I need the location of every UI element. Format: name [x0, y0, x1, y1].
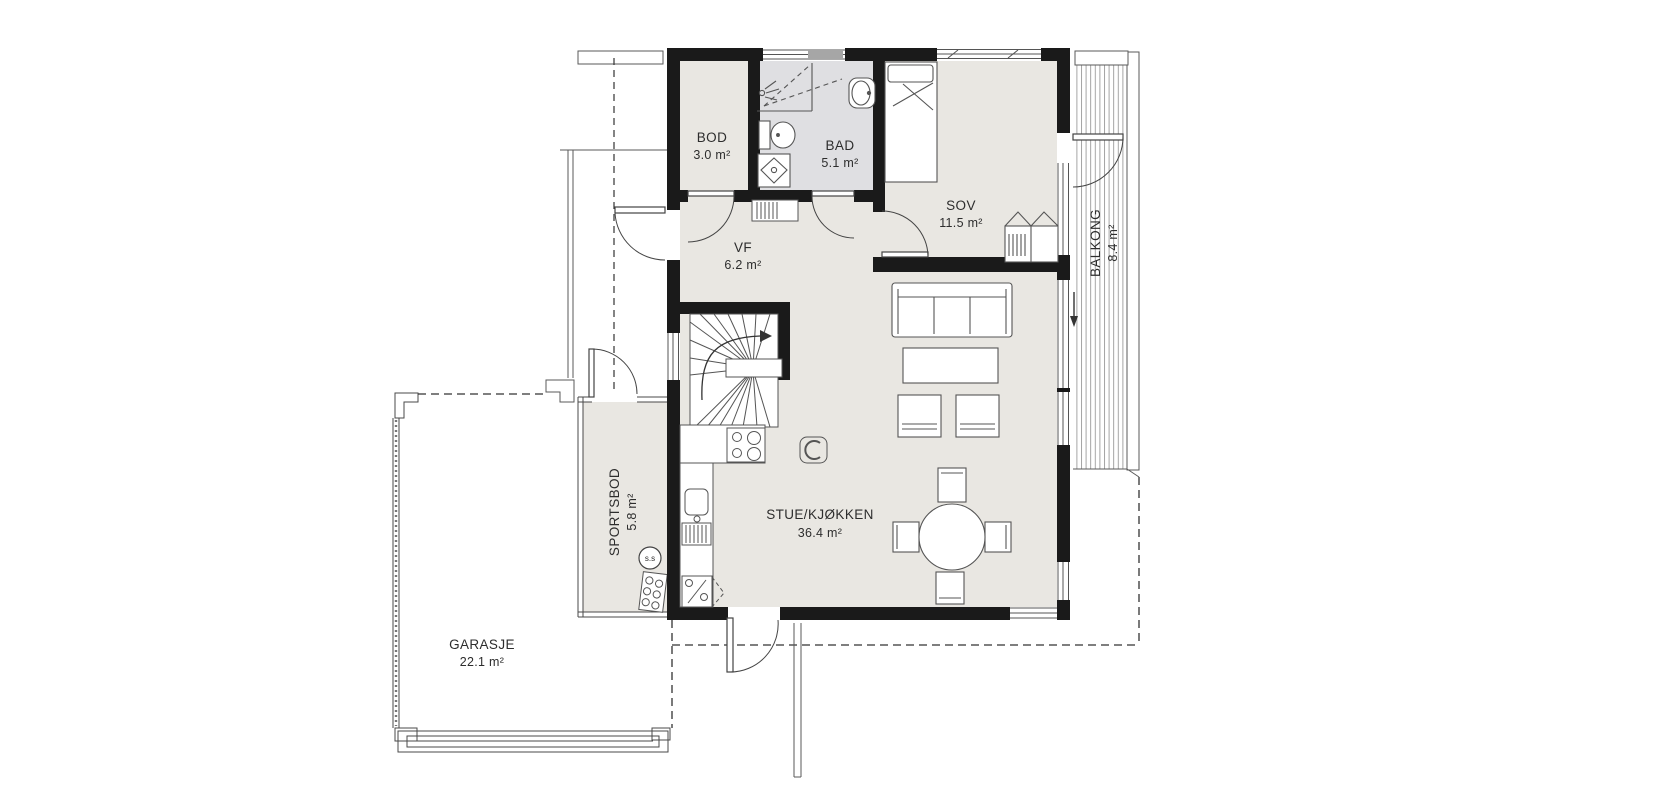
wall-left-bottom	[667, 380, 680, 620]
garage-corner-bottom-right	[652, 728, 670, 740]
wall-right-top	[1057, 61, 1070, 133]
garage-corner-top-left	[395, 393, 418, 418]
wall-right-lower	[1057, 445, 1070, 562]
wall-stair-top	[667, 302, 790, 314]
window-top-bedroom	[937, 50, 1041, 59]
balcony-fascia	[1127, 52, 1139, 470]
door-entrance-side	[615, 207, 665, 260]
water-heater-label: s.s	[645, 554, 655, 563]
tech-unit	[639, 572, 667, 613]
dining-chair-east	[985, 522, 1011, 552]
coffee-table	[903, 348, 998, 383]
toilet	[759, 121, 795, 149]
floor-plan-page: s.s	[0, 0, 1670, 800]
floor-drain	[758, 154, 790, 187]
sportsbod: s.s	[578, 349, 667, 617]
window-right-living-lower	[1058, 562, 1069, 600]
window-right-living-upper	[1057, 280, 1070, 445]
label-sov-area: 11.5 m²	[939, 216, 983, 230]
label-sportsbod-area: 5.8 m²	[625, 493, 639, 530]
wall-sink	[849, 78, 875, 108]
wall-left-top	[667, 48, 680, 210]
label-garasje-name: GARASJE	[449, 637, 515, 652]
porch-beam	[578, 51, 663, 64]
label-bod-name: BOD	[697, 130, 727, 145]
dining-chair-south	[936, 572, 964, 604]
window-top-bath	[763, 50, 845, 59]
armchair-left	[898, 395, 941, 437]
window-right-bedroom	[1058, 163, 1069, 255]
floor-plan-canvas: s.s	[0, 0, 1670, 800]
wall-left-mid	[667, 260, 680, 333]
label-bod-area: 3.0 m²	[693, 148, 730, 162]
label-balkong-name: BALKONG	[1088, 209, 1103, 277]
armchair-right	[956, 395, 999, 437]
hall-cabinet	[752, 200, 798, 221]
wall-top-mid	[845, 48, 937, 61]
wall-top-left	[667, 48, 763, 61]
entrance-screen-wall	[794, 623, 801, 777]
wall-hall-seg-a	[667, 190, 688, 202]
vent-block	[808, 50, 843, 59]
stair-handrail	[726, 359, 782, 377]
label-bad-name: BAD	[826, 138, 855, 153]
label-sportsbod-name: SPORTSBOD	[607, 468, 622, 556]
wall-top-right-corner	[1041, 48, 1070, 61]
label-balkong-area: 8.4 m²	[1106, 224, 1120, 261]
entrance-porch	[546, 51, 667, 402]
kitchen-counter-left	[680, 463, 713, 607]
sportsbod-door-leaf	[589, 349, 594, 397]
label-garasje-area: 22.1 m²	[460, 655, 504, 669]
label-sov-name: SOV	[946, 198, 976, 213]
label-bad-area: 5.1 m²	[821, 156, 858, 170]
label-stue-name: STUE/KJØKKEN	[766, 507, 874, 522]
window-mullion	[1057, 388, 1070, 392]
porch-corner-post	[546, 380, 574, 402]
dining-table	[919, 504, 985, 570]
wall-right-bottom-corner	[1057, 600, 1070, 620]
label-vf-area: 6.2 m²	[724, 258, 761, 272]
label-stue-area: 36.4 m²	[798, 526, 842, 540]
wall-bottom-mid	[780, 607, 1010, 620]
label-vf-name: VF	[734, 240, 752, 255]
wall-right-mid-junction	[1057, 255, 1070, 280]
balcony	[1070, 51, 1139, 477]
window-bottom-living	[1010, 608, 1057, 618]
balcony-railing-top	[1075, 51, 1128, 65]
window-stairs-left	[668, 333, 679, 380]
sofa	[892, 283, 1012, 337]
bed	[885, 62, 937, 182]
